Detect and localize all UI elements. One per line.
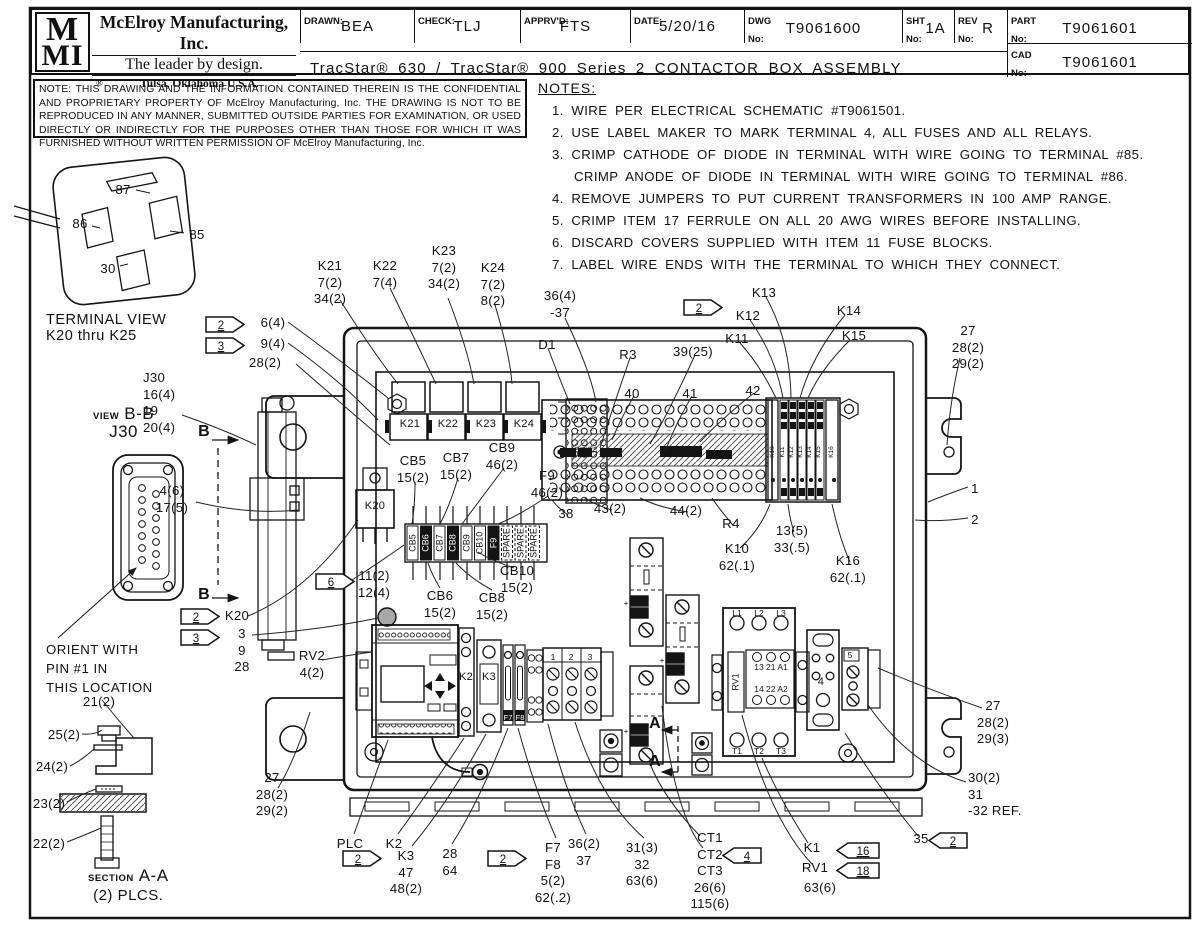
callout-label: + <box>660 655 665 666</box>
sht-cell: SHT No: 1A <box>902 10 954 43</box>
callout-label: CB9 <box>461 534 472 552</box>
svg-text:2: 2 <box>500 854 506 866</box>
callout-label: J30 16(4) 19 20(4) <box>143 370 175 436</box>
callout-label: 9(4) <box>261 336 286 353</box>
orient-note: ORIENT WITH PIN #1 IN THIS LOCATION <box>46 640 153 697</box>
note-item: 6. DISCARD COVERS SUPPLIED WITH ITEM 11 … <box>538 232 1186 254</box>
svg-text:2: 2 <box>696 303 702 315</box>
section-aa-caption: SECTION A-A (2) PLCS. <box>88 866 169 904</box>
callout-label: K23 <box>476 418 496 432</box>
callout-label: 27 28(2) 29(3) <box>977 698 1009 748</box>
note-item: CRIMP ANODE OF DIODE IN TERMINAL WITH WI… <box>538 166 1186 188</box>
callout-label: K3 <box>482 671 496 685</box>
callout-label: K15 <box>842 328 866 345</box>
callout-label: 36(4) -37 <box>544 288 576 321</box>
notes-section: NOTES: 1. WIRE PER ELECTRICAL SCHEMATIC … <box>538 80 1186 276</box>
callout-label: CB8 15(2) <box>476 590 508 623</box>
callout-label: CB7 15(2) <box>440 450 472 483</box>
callout-label: 42 <box>745 383 760 400</box>
rev-value: R <box>969 20 1007 37</box>
callout-label: K3 47 48(2) <box>390 848 422 898</box>
note-item: 4. REMOVE JUMPERS TO PUT CURRENT TRANSFO… <box>538 188 1186 210</box>
callout-label: 35 <box>913 831 928 848</box>
apprvd-value: FTS <box>521 18 630 35</box>
part-value: T9061601 <box>1008 20 1192 37</box>
drawing-sheet: DRAWN: BEA CHECK: TLJ APPRV'D: FTS DATE:… <box>0 0 1200 927</box>
callout-label: K11 <box>779 446 787 457</box>
callout-label: K12 <box>788 446 796 458</box>
company-tagline: The leader by design. <box>92 56 296 76</box>
callout-label: 43(2) <box>594 501 626 518</box>
callout-label: 5 <box>848 650 853 661</box>
callout-label: 27 28(2) 29(2) <box>256 770 288 820</box>
callout-label: CB7 <box>434 534 445 552</box>
callout-label: L1 <box>732 608 741 619</box>
note-item: 1. WIRE PER ELECTRICAL SCHEMATIC #T90615… <box>538 100 1186 122</box>
callout-label: F9 46(2) <box>531 468 563 501</box>
notes-heading: NOTES: <box>538 80 1186 96</box>
callout-label: 4 <box>818 676 824 690</box>
callout-label: 44(2) <box>670 503 702 520</box>
callout-label: K15 <box>815 446 823 458</box>
callout-label: K24 <box>514 418 534 432</box>
callout-label: K14 <box>837 303 861 320</box>
callout-label: CB9 46(2) <box>486 440 518 473</box>
svg-text:3: 3 <box>193 633 199 645</box>
callout-label: 27 28(2) 29(2) <box>952 323 984 373</box>
callout-label: 36(2) 37 <box>568 836 600 869</box>
notes-list: 1. WIRE PER ELECTRICAL SCHEMATIC #T90615… <box>538 100 1186 276</box>
section-aa-name: A-A <box>139 866 169 885</box>
callout-label: 63(6) <box>804 880 836 897</box>
callout-label: B <box>198 585 210 605</box>
callout-label: L3 <box>776 608 785 619</box>
callout-label: K23 7(2) 34(2) <box>428 243 460 293</box>
rev-cell: REV No: R <box>954 10 1007 43</box>
cad-value: T9061601 <box>1008 54 1192 71</box>
callout-label: F7 <box>504 713 513 722</box>
terminal-view-caption: TERMINAL VIEW K20 thru K25 <box>46 312 166 344</box>
callout-label: K13 <box>752 285 776 302</box>
svg-text:6: 6 <box>328 577 334 589</box>
apprvd-cell: APPRV'D: FTS <box>520 10 630 43</box>
check-cell: CHECK: TLJ <box>414 10 520 43</box>
callout-label: 23(2) <box>33 796 65 813</box>
callout-label: + <box>624 598 629 609</box>
svg-text:2: 2 <box>193 612 199 624</box>
callout-label: 30 <box>100 261 115 278</box>
callout-label: 21(2) <box>83 694 115 711</box>
confidentiality-note: NOTE: THIS DRAWING AND THE INFORMATION C… <box>33 79 527 138</box>
callout-label: 2 <box>569 652 574 663</box>
callout-label: 3 <box>588 652 593 663</box>
callout-label: L2 <box>754 608 763 619</box>
callout-label: R4 <box>722 516 739 533</box>
callout-label: K22 7(4) <box>373 258 398 291</box>
check-value: TLJ <box>415 18 520 35</box>
dwg-cell: DWG No: T9061600 <box>744 10 902 43</box>
callout-label: SPARE <box>501 528 512 558</box>
callout-label: 3 9 28 <box>234 626 249 676</box>
callout-label: 30(2) 31 -32 REF. <box>968 770 1022 820</box>
callout-label: 39(25) <box>673 344 713 361</box>
callout-label: 31(3) 32 63(6) <box>626 840 658 890</box>
callout-label: 4(6) 17(5) <box>156 483 188 516</box>
callout-label: 38 <box>558 506 573 523</box>
callout-label: CB6 15(2) <box>424 588 456 621</box>
callout-label: K10 62(.1) <box>719 541 755 574</box>
part-cell: PART No: T9061601 <box>1007 10 1192 43</box>
drawn-cell: DRAWN: BEA <box>300 10 414 43</box>
callout-label: T1 <box>732 746 742 757</box>
note-item: 7. LABEL WIRE ENDS WITH THE TERMINAL TO … <box>538 254 1186 276</box>
callout-label: 16 <box>592 446 600 453</box>
svg-text:18: 18 <box>857 866 870 878</box>
section-aa-places: (2) PLCS. <box>88 887 169 904</box>
date-value: 5/20/16 <box>631 18 744 35</box>
callout-label: F9 <box>488 538 499 549</box>
callout-label: 87 <box>115 182 130 199</box>
callout-label: K21 <box>400 418 420 432</box>
drawn-value: BEA <box>301 18 414 35</box>
callout-label: SPARE <box>515 528 526 558</box>
callout-label: CB10 <box>474 532 485 555</box>
callout-label: A <box>649 714 661 734</box>
callout-label: 2 <box>971 512 979 529</box>
callout-label: K16 <box>828 446 836 458</box>
svg-text:2: 2 <box>218 320 224 332</box>
callout-label: F8 <box>516 713 525 722</box>
svg-text:3: 3 <box>218 341 224 353</box>
callout-label: 28 64 <box>442 846 457 879</box>
callout-label: A <box>649 752 661 772</box>
callout-label: 85 <box>189 227 204 244</box>
callout-label: 41 <box>682 386 697 403</box>
note-item: 5. CRIMP ITEM 17 FERRULE ON ALL 20 AWG W… <box>538 210 1186 232</box>
note-item: 3. CRIMP CATHODE OF DIODE IN TERMINAL WI… <box>538 144 1186 166</box>
callout-label: B <box>198 422 210 442</box>
svg-text:2: 2 <box>950 836 956 848</box>
callout-label: RV1 <box>730 673 741 690</box>
callout-label: K12 <box>736 308 760 325</box>
callout-label: 86 <box>72 216 87 233</box>
callout-label: K24 7(2) 8(2) <box>481 260 506 310</box>
callout-label: RV1 <box>802 860 828 877</box>
callout-label: R3 <box>619 347 636 364</box>
callout-label: 13(5) 33(.5) <box>774 523 810 556</box>
callout-label: K20 <box>225 608 249 625</box>
callout-label: 22(2) <box>33 836 65 853</box>
cad-cell: CAD No: T9061601 <box>1007 43 1192 77</box>
callout-label: RV2 4(2) <box>299 648 325 681</box>
company-block: McElroy Manufacturing, Inc. The leader b… <box>92 12 296 74</box>
callout-label: T2 <box>754 746 764 757</box>
callout-label: K13 <box>797 446 805 458</box>
dwg-value: T9061600 <box>745 20 902 37</box>
callout-label: 14 22 A2 <box>754 684 788 695</box>
callout-label: K16 62(.1) <box>830 553 866 586</box>
callout-label: CT1 CT2 CT3 26(6) 115(6) <box>691 830 730 913</box>
callout-label: K14 <box>806 446 814 458</box>
callout-label: SPARE <box>528 528 539 558</box>
callout-label: K21 7(2) 34(2) <box>314 258 346 308</box>
callout-label: K20 <box>365 500 385 514</box>
callout-label: CB5 <box>407 534 418 552</box>
callout-label: 13 21 A1 <box>754 662 788 673</box>
callout-label: 11(2) 12(4) <box>358 568 390 601</box>
company-name: McElroy Manufacturing, Inc. <box>92 12 296 56</box>
logo-letters-mi: MI <box>37 44 88 69</box>
company-logo: M MI <box>35 12 90 72</box>
callout-label: 25(2) <box>48 727 80 744</box>
date-cell: DATE: 5/20/16 <box>630 10 744 43</box>
svg-text:4: 4 <box>744 851 751 863</box>
callout-label: K1 <box>804 840 821 857</box>
callout-label: CB8 <box>447 534 458 552</box>
callout-label: 28(2) <box>249 355 281 372</box>
sht-value: 1A <box>917 20 954 37</box>
svg-text:2: 2 <box>355 854 361 866</box>
callout-label: 40 <box>624 386 639 403</box>
callout-label: K11 <box>725 331 748 348</box>
callout-label: F7 F8 5(2) 62(.2) <box>535 840 571 906</box>
callout-label: CB5 15(2) <box>397 453 429 486</box>
callout-label: 24(2) <box>36 759 68 776</box>
callout-label: K10 <box>769 446 777 458</box>
svg-text:16: 16 <box>857 846 870 858</box>
callout-label: 1 <box>551 652 556 663</box>
callout-label: CB6 <box>420 534 431 552</box>
callout-label: K2 <box>459 671 473 685</box>
callout-label: T3 <box>776 746 786 757</box>
callout-label: K22 <box>438 418 458 432</box>
callout-label: + <box>624 726 629 737</box>
note-item: 2. USE LABEL MAKER TO MARK TERMINAL 4, A… <box>538 122 1186 144</box>
callout-label: 1 <box>971 481 979 498</box>
callout-label: D1 <box>538 337 555 354</box>
callout-label: 6(4) <box>261 315 286 332</box>
